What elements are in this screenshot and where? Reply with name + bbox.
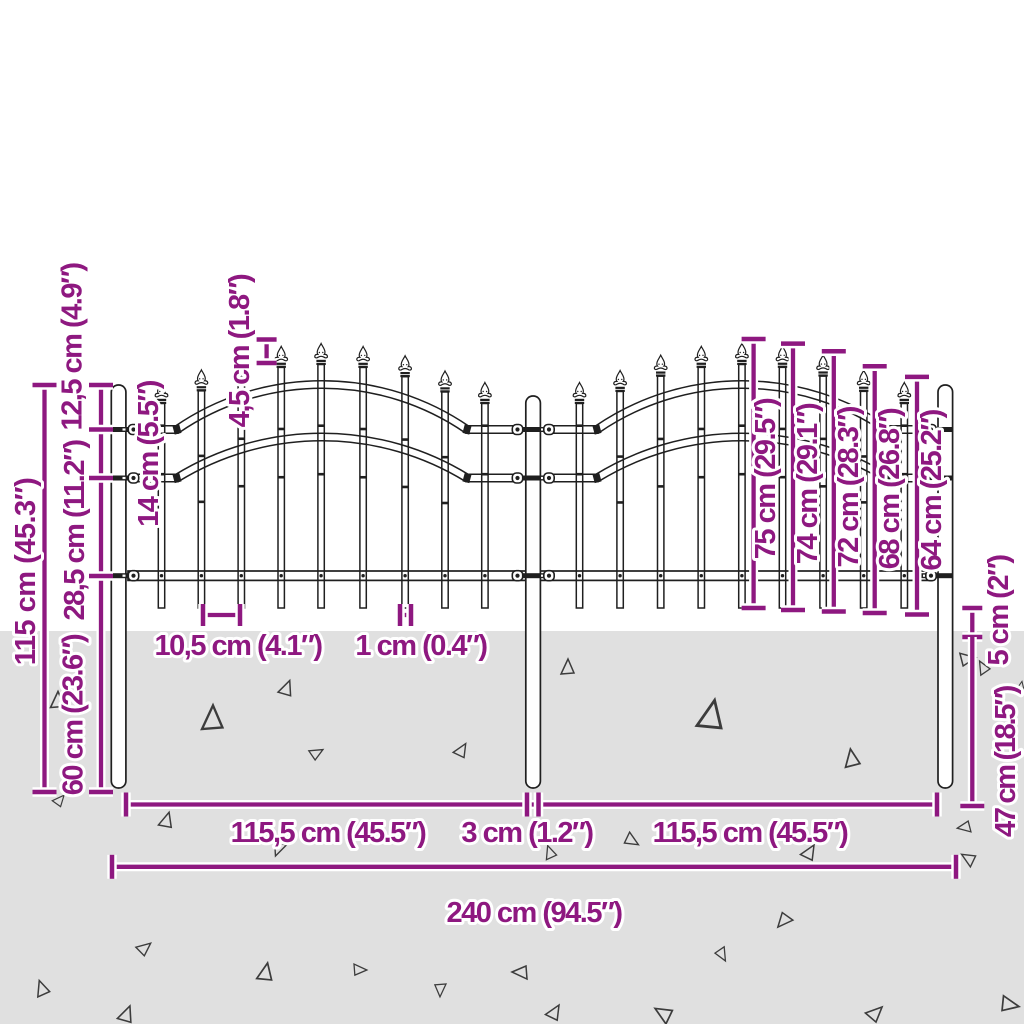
- svg-text:74 cm (29.1″): 74 cm (29.1″): [792, 403, 824, 564]
- svg-text:1 cm (0.4″): 1 cm (0.4″): [355, 630, 487, 662]
- svg-text:115,5 cm (45.5″): 115,5 cm (45.5″): [653, 817, 848, 849]
- svg-text:240 cm (94.5″): 240 cm (94.5″): [446, 897, 622, 929]
- svg-text:12,5 cm (4.9″): 12,5 cm (4.9″): [57, 263, 89, 431]
- svg-text:47 cm (18.5″): 47 cm (18.5″): [990, 685, 1022, 837]
- svg-text:115,5 cm (45.5″): 115,5 cm (45.5″): [231, 817, 426, 849]
- svg-text:60 cm (23.6″): 60 cm (23.6″): [58, 634, 90, 795]
- svg-text:4,5 cm (1.8″): 4,5 cm (1.8″): [224, 274, 256, 427]
- svg-text:14 cm (5.5″): 14 cm (5.5″): [133, 380, 165, 527]
- svg-text:115 cm (45.3″): 115 cm (45.3″): [10, 478, 42, 665]
- svg-text:68 cm (26.8″): 68 cm (26.8″): [874, 408, 906, 569]
- svg-text:72 cm (28.3″): 72 cm (28.3″): [833, 406, 865, 567]
- svg-text:75 cm (29.5″): 75 cm (29.5″): [750, 398, 782, 559]
- svg-text:64 cm (25.2″): 64 cm (25.2″): [916, 409, 948, 570]
- svg-text:5 cm (2″): 5 cm (2″): [983, 555, 1015, 666]
- svg-text:28,5 cm (11.2″): 28,5 cm (11.2″): [59, 440, 91, 621]
- svg-text:3 cm (1.2″): 3 cm (1.2″): [461, 817, 593, 849]
- svg-text:10,5 cm (4.1″): 10,5 cm (4.1″): [155, 630, 323, 662]
